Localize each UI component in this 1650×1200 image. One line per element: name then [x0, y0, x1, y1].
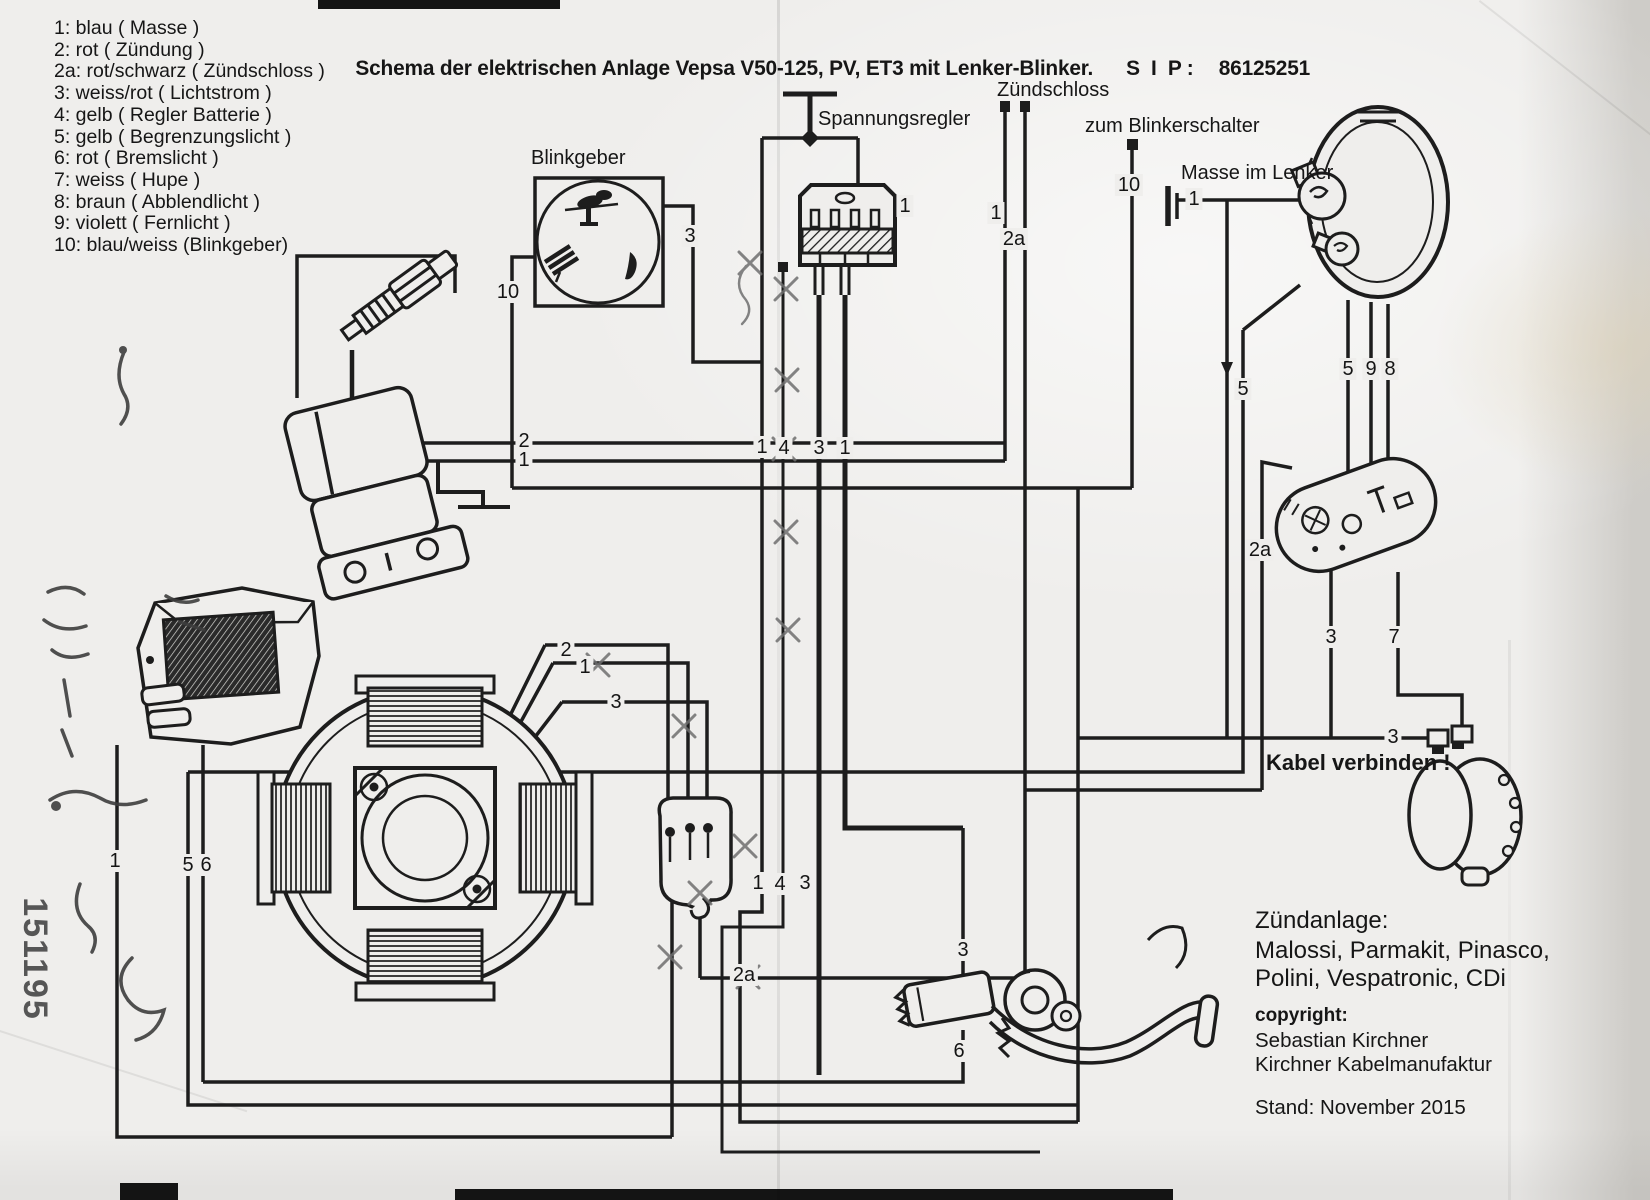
- legend-item: 1: blau ( Masse ): [54, 18, 325, 40]
- wire-label: 5: [1234, 378, 1251, 400]
- cdi-unit-drawing: [138, 588, 319, 744]
- wire-label: 1: [576, 656, 593, 678]
- stator-drawing: [258, 676, 592, 1000]
- wire-label: 1: [896, 195, 913, 217]
- legend-item: 7: weiss ( Hupe ): [54, 170, 325, 192]
- cable-connector-drawing: [659, 798, 731, 918]
- legend-item: 4: gelb ( Regler Batterie ): [54, 105, 325, 127]
- wire-label: 2: [557, 639, 574, 661]
- label-masse-im-lenker: Masse im Lenker: [1181, 163, 1333, 185]
- wire-label: 2a: [1000, 228, 1028, 250]
- wire-label: 1: [753, 436, 770, 458]
- voltage-regulator-drawing: [800, 185, 895, 265]
- wire-label: 3: [796, 872, 813, 894]
- scanned-wiring-diagram: 1: blau ( Masse )2: rot ( Zündung )2a: r…: [0, 0, 1650, 1200]
- wire-label: 6: [197, 854, 214, 876]
- label-spannungsregler: Spannungsregler: [818, 109, 970, 131]
- brake-pedal-drawing: [894, 927, 1218, 1063]
- label-blinkgeber: Blinkgeber: [531, 148, 626, 170]
- legend-item: 6: rot ( Bremslicht ): [54, 148, 325, 170]
- wire-label: 1: [1185, 188, 1202, 210]
- info-copyright-name: Sebastian Kirchner: [1255, 1030, 1428, 1052]
- wire-label: 3: [1384, 726, 1401, 748]
- wire-label: 5: [179, 854, 196, 876]
- wire-label: 1: [106, 850, 123, 872]
- info-ignition-line2: Polini, Vespatronic, CDi: [1255, 966, 1506, 992]
- info-stand-date: Stand: November 2015: [1255, 1097, 1466, 1119]
- blinkgeber-drawing: [535, 178, 663, 306]
- wire-color-legend: 1: blau ( Masse )2: rot ( Zündung )2a: r…: [54, 18, 325, 257]
- title-text: Schema der elektrischen Anlage Vepsa V50…: [355, 56, 1093, 80]
- wire-label: 3: [1322, 626, 1339, 648]
- handwritten-stamp-number: 151195: [16, 894, 54, 1024]
- legend-item: 9: violett ( Fernlicht ): [54, 213, 325, 235]
- wire-label: 4: [771, 873, 788, 895]
- wire-label: 1: [836, 437, 853, 459]
- legend-item: 5: gelb ( Begrenzungslicht ): [54, 127, 325, 149]
- info-ignition-title: Zündanlage:: [1255, 908, 1388, 934]
- legend-item: 8: braun ( Abblendlicht ): [54, 192, 325, 214]
- legend-item: 2a: rot/schwarz ( Zündschloss ): [54, 61, 325, 83]
- legend-item: 2: rot ( Zündung ): [54, 40, 325, 62]
- title-sip-label: S I P :: [1126, 56, 1193, 80]
- wire-arrow-tick: [1221, 362, 1233, 376]
- wire-label: 9: [1362, 358, 1379, 380]
- label-kabel-verbinden: Kabel verbinden !: [1266, 751, 1451, 775]
- wire-label: 2a: [1246, 539, 1274, 561]
- wire-label: 10: [1115, 174, 1143, 196]
- wire-label: 2a: [730, 964, 758, 986]
- diagram-title: Schema der elektrischen Anlage Vepsa V50…: [333, 31, 1310, 106]
- label-zum-blinkerschalter: zum Blinkerschalter: [1085, 116, 1260, 138]
- wire-label: 3: [681, 225, 698, 247]
- info-ignition-line1: Malossi, Parmakit, Pinasco,: [1255, 938, 1550, 964]
- wire-label: 3: [607, 691, 624, 713]
- info-copyright-label: copyright:: [1255, 1006, 1348, 1027]
- junction-diamond: [801, 129, 819, 147]
- label-zuendschloss: Zündschloss: [997, 80, 1109, 102]
- spark-plug-drawing: [336, 245, 460, 347]
- wire-label: 4: [775, 437, 792, 459]
- legend-item: 3: weiss/rot ( Lichtstrom ): [54, 83, 325, 105]
- title-sip-number: 86125251: [1219, 56, 1310, 80]
- wire-label: 8: [1381, 358, 1398, 380]
- headlamp-drawing: [1292, 107, 1448, 297]
- wire-label: 6: [950, 1040, 967, 1062]
- wire-label: 1: [987, 202, 1004, 224]
- wire-label: 10: [494, 281, 522, 303]
- wire-label: 3: [954, 939, 971, 961]
- wire-label: 3: [810, 437, 827, 459]
- legend-item: 10: blau/weiss (Blinkgeber): [54, 235, 325, 257]
- wire-label: 5: [1339, 358, 1356, 380]
- wire-label: 7: [1385, 626, 1402, 648]
- wire-label: 1: [515, 449, 532, 471]
- info-copyright-company: Kirchner Kabelmanufaktur: [1255, 1054, 1492, 1076]
- wire-label: 1: [749, 872, 766, 894]
